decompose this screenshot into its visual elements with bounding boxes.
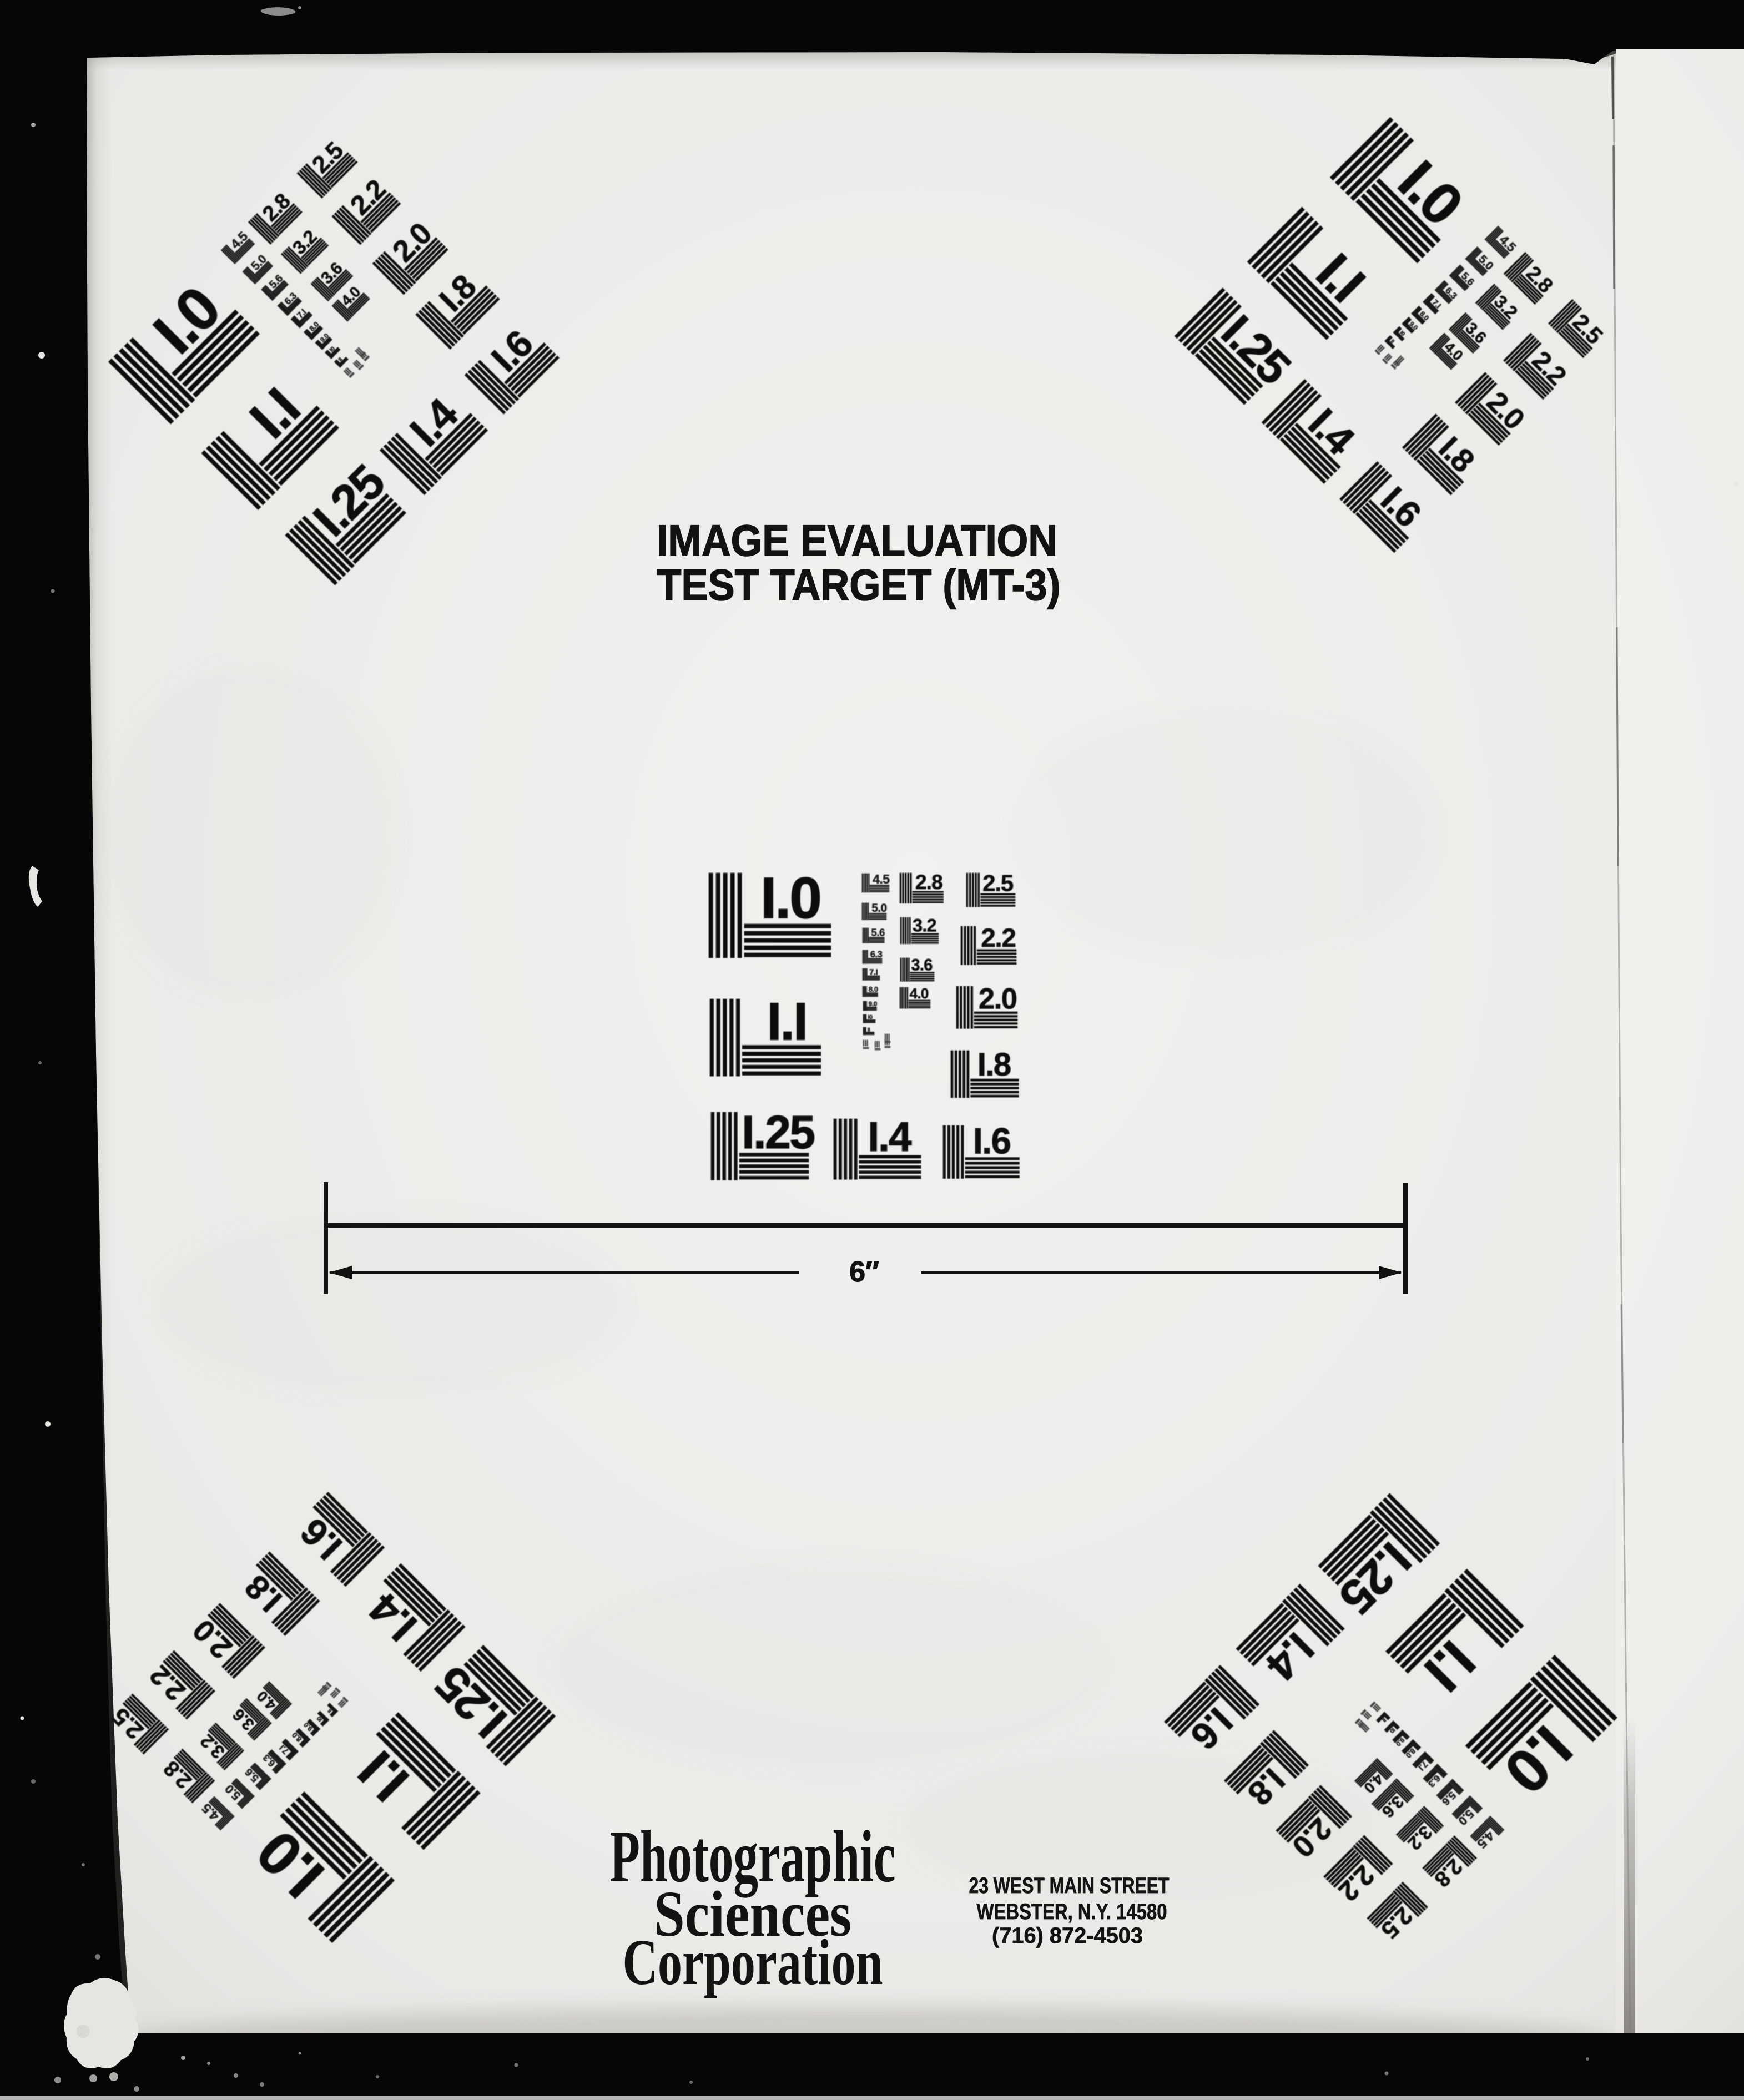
svg-text:23 WEST MAIN STREET: 23 WEST MAIN STREET [969, 1874, 1170, 1898]
svg-text:WEBSTER, N.Y. 14580: WEBSTER, N.Y. 14580 [977, 1900, 1167, 1924]
svg-text:Corporation: Corporation [623, 1926, 883, 1998]
svg-text:(716) 872-4503: (716) 872-4503 [992, 1924, 1143, 1948]
svg-text:6″: 6″ [849, 1256, 879, 1288]
svg-text:IMAGE EVALUATION: IMAGE EVALUATION [657, 516, 1057, 565]
svg-text:TEST TARGET (MT-3): TEST TARGET (MT-3) [657, 560, 1061, 609]
